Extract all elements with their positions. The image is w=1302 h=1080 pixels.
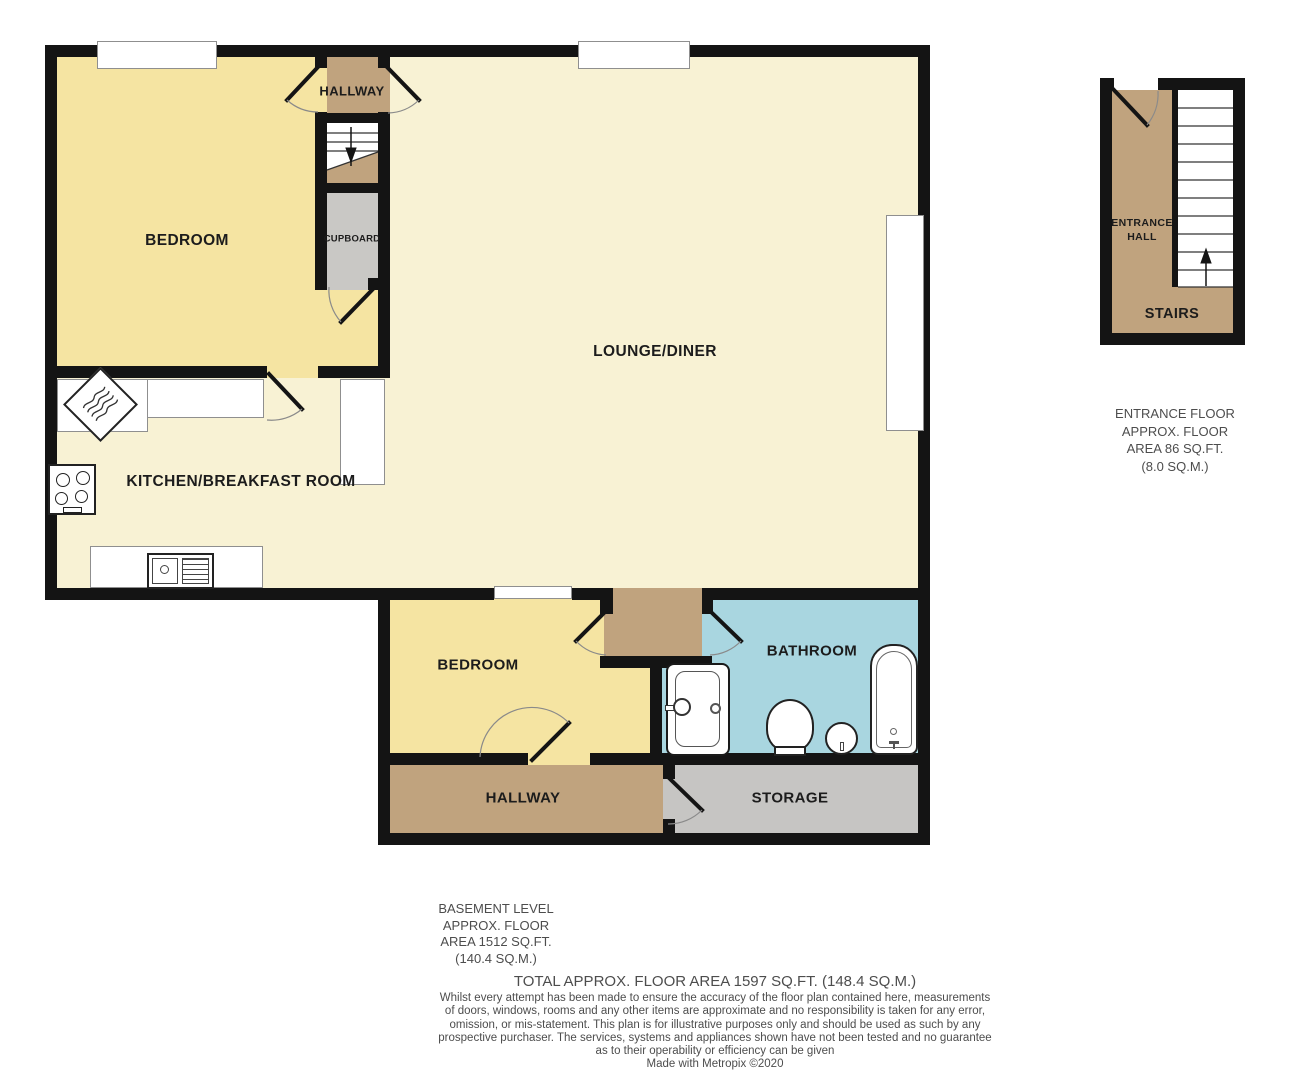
basement-area-note-line: AREA 1512 SQ.FT.: [438, 934, 553, 951]
floorplan-page: { "colors": { "wall": "#141414", "bedroo…: [0, 0, 1302, 1080]
wall-kitchen-bottom: [45, 588, 390, 600]
room-label-bathroom: BATHROOM: [767, 643, 857, 660]
disclaimer-text: Whilst every attempt has been made to en…: [438, 992, 991, 1072]
made-with-text: Made with Metropix ©2020: [438, 1058, 991, 1071]
room-label-entrance-hall: ENTRANCE HALL: [1111, 216, 1173, 244]
shower-enclosure: [666, 663, 730, 756]
hob-burner: [56, 473, 70, 487]
window-lounge-top: [578, 41, 690, 69]
hob-burner: [55, 492, 68, 505]
wall-lower-top-c: [702, 588, 930, 600]
room-label-cupboard: CUPBOARD: [324, 234, 381, 245]
disclaimer-line: omission, or mis-statement. This plan is…: [438, 1019, 991, 1032]
wall-entrance-right: [1233, 78, 1245, 345]
wall-stairs-divider: [1172, 90, 1178, 287]
wall-stair-head: [327, 113, 390, 123]
hob-burner: [75, 490, 88, 503]
window-bedroom2-top: [494, 586, 572, 599]
sink-drain: [160, 565, 169, 574]
wall-bathroom-door-nub: [702, 598, 713, 614]
sink-drainer: [182, 558, 209, 584]
wall-bedroom1-bottom-left: [45, 366, 267, 378]
wall-outer-left: [45, 45, 57, 600]
hob-controls: [63, 507, 82, 513]
bathtub-tap-icon: [893, 741, 895, 749]
wall-bedroom1-right: [315, 112, 327, 290]
room-label-bedroom-2: BEDROOM: [437, 657, 518, 674]
bathtub-drain: [890, 728, 897, 735]
wall-entrance-left: [1100, 78, 1112, 345]
wall-entrance-bottom: [1100, 333, 1245, 345]
wall-lower-left: [378, 588, 390, 845]
room-label-kitchen: KITCHEN/BREAKFAST ROOM: [126, 473, 355, 491]
basement-area-note-line: BASEMENT LEVEL: [438, 901, 553, 918]
room-bedroom-1-floor: [57, 57, 327, 378]
total-area-text: TOTAL APPROX. FLOOR AREA 1597 SQ.FT. (14…: [514, 973, 916, 990]
hob-burner: [76, 471, 90, 485]
wall-hallway2-top-left: [378, 753, 528, 765]
wall-bedroom2-door-nub: [600, 598, 613, 614]
bathtub-icon: [870, 644, 918, 755]
window-bedroom1-top: [97, 41, 217, 69]
room-label-hallway-lower: HALLWAY: [486, 790, 561, 807]
disclaimer-line: Whilst every attempt has been made to en…: [438, 992, 991, 1005]
disclaimer-line: prospective purchaser. The services, sys…: [438, 1032, 991, 1045]
basin-icon: [825, 722, 858, 755]
window-lounge-right: [886, 215, 924, 431]
entrance-area-note: ENTRANCE FLOOR APPROX. FLOOR AREA 86 SQ.…: [1115, 405, 1235, 475]
disclaimer-line: of doors, windows, rooms and any other i…: [438, 1005, 991, 1018]
wall-hallway1-right: [378, 112, 390, 378]
sink-unit: [147, 553, 214, 589]
kitchen-counter-right: [340, 379, 385, 485]
wall-lower-top-a: [378, 588, 494, 600]
wall-bedroom1-door-nub: [315, 57, 327, 68]
wall-outer-bottom: [378, 833, 930, 845]
wall-bedroom1-bottom-right: [318, 366, 390, 378]
wall-cupboard-top: [327, 183, 390, 193]
wall-hallway1-door-nub: [378, 57, 390, 68]
room-label-bedroom-1: BEDROOM: [145, 232, 229, 250]
entrance-area-note-line: ENTRANCE FLOOR: [1115, 405, 1235, 423]
entrance-area-note-line: (8.0 SQ.M.): [1115, 458, 1235, 476]
shower-handle-icon: [710, 703, 721, 714]
stairs-entrance-area: [1178, 90, 1233, 287]
wall-cupboard-nub-right: [368, 278, 390, 290]
wall-cupboard-nub-left: [315, 278, 327, 290]
wall-storage-nub-bottom: [663, 819, 675, 833]
hob-icon: [48, 464, 96, 515]
toilet-cistern: [774, 746, 806, 756]
basin-tap-icon: [840, 742, 844, 751]
wall-entrance-top-left: [1100, 78, 1114, 90]
wall-storage-nub-top: [663, 765, 675, 779]
shower-head-icon: [673, 698, 691, 716]
room-label-entrance-hall-line1: ENTRANCE: [1111, 216, 1173, 230]
wall-outer-right: [918, 45, 930, 845]
basement-area-note: BASEMENT LEVEL APPROX. FLOOR AREA 1512 S…: [438, 901, 553, 967]
room-label-storage: STORAGE: [752, 790, 829, 807]
wall-bathroom-left: [650, 656, 662, 765]
toilet-icon: [766, 699, 814, 752]
basement-area-note-line: (140.4 SQ.M.): [438, 951, 553, 968]
basement-area-note-line: APPROX. FLOOR: [438, 918, 553, 935]
wall-entrance-top-right: [1158, 78, 1245, 90]
disclaimer-line: as to their operability or efficiency ca…: [438, 1045, 991, 1058]
room-label-lounge-diner: LOUNGE/DINER: [593, 343, 717, 361]
room-label-hallway-upper: HALLWAY: [319, 84, 384, 99]
entrance-area-note-line: APPROX. FLOOR: [1115, 423, 1235, 441]
room-label-entrance-hall-line2: HALL: [1111, 230, 1173, 244]
entrance-area-note-line: AREA 86 SQ.FT.: [1115, 440, 1235, 458]
room-label-stairs: STAIRS: [1145, 306, 1200, 322]
vestibule-floor: [604, 588, 702, 657]
